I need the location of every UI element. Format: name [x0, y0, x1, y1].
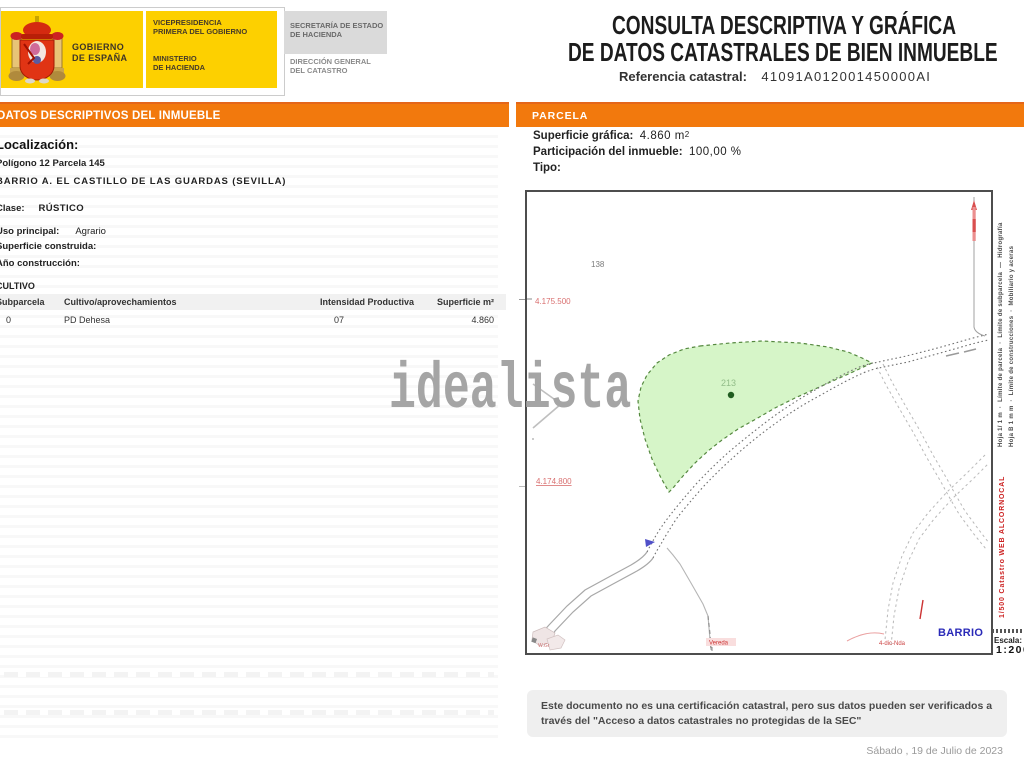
svg-text:4.174.800: 4.174.800 [536, 477, 572, 486]
svg-text:BARRIO: BARRIO [938, 627, 983, 639]
svg-text:Vereda: Vereda [709, 641, 729, 647]
svg-text:213: 213 [721, 378, 736, 388]
svg-text:138: 138 [591, 260, 605, 269]
svg-text:4.175.500: 4.175.500 [535, 297, 571, 306]
svg-text:W.Gr: W.Gr [538, 643, 550, 649]
svg-text:4-dic-Nda: 4-dic-Nda [879, 641, 906, 647]
